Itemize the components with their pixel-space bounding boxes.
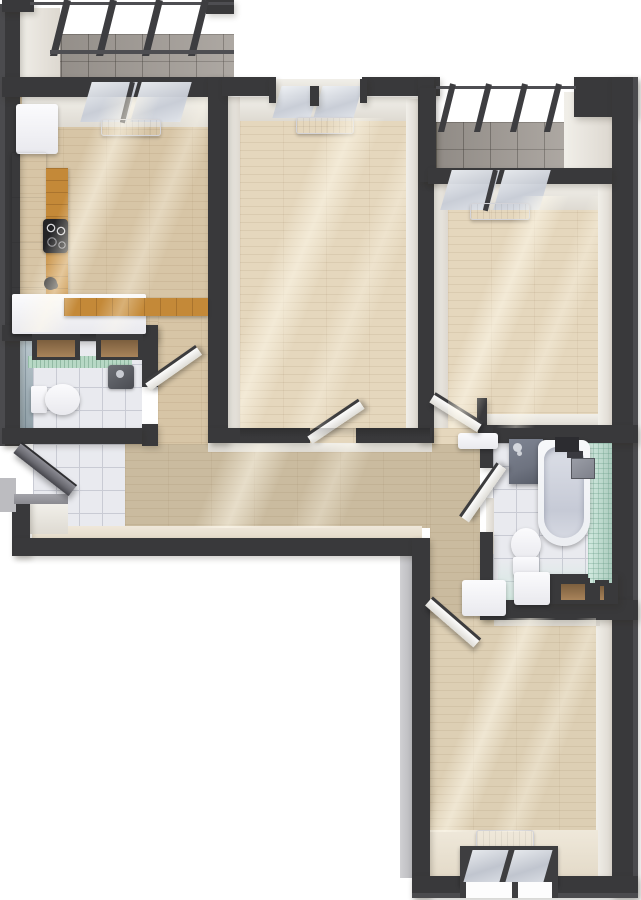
cooktop (43, 219, 68, 253)
hallway-doorway-face (208, 443, 432, 452)
room-top-middle-right-wall-face (406, 99, 418, 428)
room-top-middle-bottom-wall-right (356, 428, 432, 443)
kitchen-sink-tap (44, 277, 57, 290)
room-bottom-window-outside (460, 882, 558, 898)
glazing-mullion (473, 83, 492, 132)
glazing-mullion (188, 0, 209, 56)
bay-frame-post (360, 79, 367, 103)
shower-mixer (513, 443, 522, 452)
room-bottom-floor (430, 618, 596, 832)
hallway-doorway-sill (458, 433, 498, 449)
glazing-mullion (543, 83, 562, 132)
hallway-bottom-wall (14, 538, 422, 556)
room-bottom-left-outer-face (400, 540, 412, 878)
hallway-floor (125, 444, 430, 528)
kitchen-counter-top-wood (64, 298, 208, 316)
corridor-cabinet (462, 580, 506, 616)
room-top-middle-top-wall-left (222, 77, 276, 96)
floor-plan-render (0, 0, 641, 900)
wc-right-wall-lower (142, 424, 158, 446)
wall-kitchen-room-divider (208, 77, 228, 443)
glazing-mullion (142, 0, 163, 56)
wc-basin-tap (116, 370, 124, 378)
balcony-top-right-glazing (436, 80, 576, 132)
glazing-mullion (509, 83, 528, 132)
outer-wall-right-edge (633, 77, 638, 898)
glazing-mullion (96, 0, 117, 56)
room-top-middle-radiator (296, 117, 354, 134)
balcony-top-left-glazing (30, 0, 234, 56)
bay-frame-post (269, 79, 276, 103)
entrance-rail (14, 494, 68, 504)
room-top-middle-left-wall-face (228, 97, 240, 428)
refrigerator (16, 104, 58, 154)
bathroom-washer-cabinet (514, 572, 550, 605)
room-top-right-floor (448, 196, 598, 428)
bathroom-wall-niche (595, 580, 609, 603)
room-top-right-right-wall-face (598, 184, 612, 428)
room-bottom-right-wall-face (596, 610, 612, 878)
entry-corner-wall-face (30, 504, 68, 534)
wc-wall-niche (96, 334, 143, 360)
bay-frame-post (310, 86, 319, 106)
shower-wall-shelf (571, 458, 595, 479)
kitchen-radiator (101, 119, 161, 136)
glazing-mullion (437, 83, 456, 132)
bathroom-wall-niche (556, 578, 590, 603)
glazing-bottom-rail (50, 50, 234, 54)
room-top-middle-floor (240, 118, 406, 428)
outer-wall-left-edge (0, 4, 5, 446)
glazing-mullion (50, 0, 71, 56)
room-top-middle-bottom-wall-left (208, 428, 310, 443)
wc-bottom-wall (2, 428, 142, 444)
room-bottom-left-wall (412, 538, 430, 898)
wc-toilet-bowl (45, 384, 80, 415)
room-top-right-radiator (470, 203, 530, 220)
shower-head-fitting (555, 437, 579, 452)
wc-wall-niche (32, 334, 80, 360)
room-top-right-left-wall-face (434, 182, 448, 428)
